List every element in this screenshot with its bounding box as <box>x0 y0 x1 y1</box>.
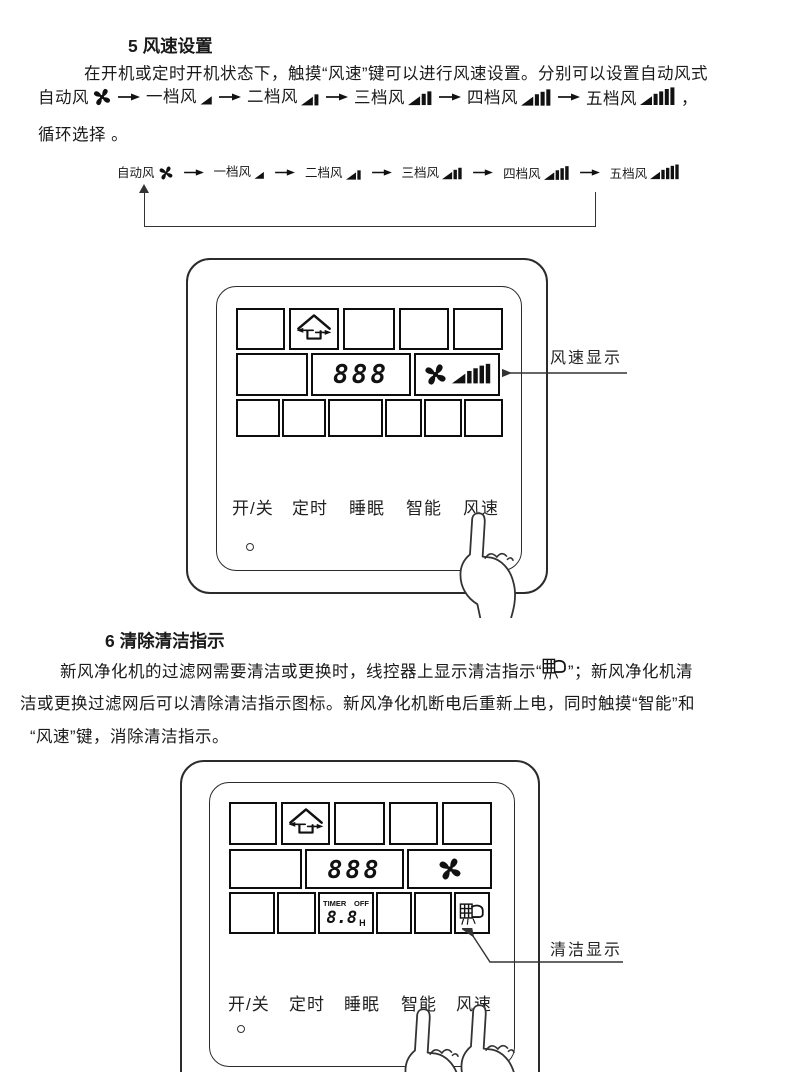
flow-item-auto: 自动风 <box>117 165 174 181</box>
home-ventilation-cell <box>281 802 330 845</box>
digits-cell: 888 <box>305 849 404 889</box>
lcd-cell <box>282 399 326 437</box>
speed-ramp-1-icon <box>254 165 265 180</box>
cycle-loop-connector <box>144 192 596 227</box>
lcd-cell <box>343 308 395 350</box>
arrow-right-icon <box>368 168 396 177</box>
section6-paragraph-line1: 新风净化机的过滤网需要清洁或更换时，线控器上显示清洁指示“”；新风净化机清 <box>60 656 693 682</box>
speed-ramp-4-icon <box>544 164 570 182</box>
section5-title: 5 风速设置 <box>128 33 213 58</box>
clean-filter-icon <box>542 656 568 681</box>
lcd-cell <box>229 849 302 889</box>
flow-item-speed5: 五档风 <box>610 163 681 182</box>
fan-cell <box>407 849 492 889</box>
lcd-cell <box>334 802 385 845</box>
lcd-cell <box>236 399 280 437</box>
lcd-cell <box>236 308 285 350</box>
lcd-display-grid: 888 <box>236 308 503 437</box>
arrow-right-icon <box>180 168 208 177</box>
segment-display: 888 <box>327 855 381 884</box>
lcd-cell <box>236 353 308 396</box>
lcd-display-grid: 888 TIMER OFF 8.8 H <box>229 802 492 934</box>
home-ventilation-cell <box>289 308 339 350</box>
flow-item-speed5: 五档风 <box>586 86 676 108</box>
lcd-cell <box>424 399 462 437</box>
lcd-cell <box>464 399 503 437</box>
flow-label: 自动风 <box>117 167 155 181</box>
fan-icon <box>437 856 463 882</box>
flow-item-auto: 自动风 <box>38 87 112 107</box>
flow-label: 二档风 <box>305 167 343 181</box>
flow-item-speed1: 一档风 <box>214 165 266 180</box>
flow-comma: ， <box>681 85 698 109</box>
key-power: 开/关 <box>232 494 274 519</box>
arrow-right-icon <box>325 92 349 102</box>
speed-ramp-4-icon <box>521 87 552 108</box>
flow-label: 自动风 <box>38 89 89 107</box>
fan-icon <box>158 165 174 181</box>
lcd-cell <box>453 308 503 350</box>
fan-speed-cell <box>414 353 500 396</box>
clean-filter-icon <box>459 901 486 926</box>
lcd-cell <box>399 308 449 350</box>
flow-item-speed1: 一档风 <box>146 88 213 106</box>
lcd-cell <box>376 892 412 934</box>
indicator-led <box>246 543 254 551</box>
flow-item-speed2: 二档风 <box>305 165 362 181</box>
arrow-right-icon <box>218 92 242 102</box>
arrow-right-icon <box>117 92 141 102</box>
flow-label: 四档风 <box>467 89 518 107</box>
key-sleep: 睡眠 <box>349 494 385 519</box>
speed-ramp-2-icon <box>346 165 362 181</box>
flow-label: 四档风 <box>503 168 541 182</box>
manual-page: 5 风速设置 在开机或定时开机状态下，触摸“风速”键可以进行风速设置。分别可以设… <box>0 0 790 1072</box>
flow-label: 二档风 <box>247 88 298 106</box>
speed-ramp-3-icon <box>442 164 463 181</box>
lcd-cell <box>277 892 316 934</box>
section6-title: 6 清除清洁指示 <box>105 628 225 653</box>
arrow-right-icon <box>469 168 497 177</box>
lcd-cell <box>229 802 277 845</box>
section6-paragraph-line2: 洁或更换过滤网后可以清除清洁指示图标。新风净化机断电后重新上电，同时触摸“智能”… <box>20 690 695 714</box>
timer-off-label: OFF <box>354 899 369 908</box>
flow-item-speed3: 三档风 <box>402 164 464 181</box>
key-timer: 定时 <box>292 494 328 519</box>
flow-label: 三档风 <box>402 167 440 181</box>
section5-paragraph-line3: 循环选择 。 <box>38 121 128 145</box>
flow-label: 五档风 <box>586 90 637 108</box>
flow-item-speed3: 三档风 <box>354 87 433 107</box>
flow-label: 三档风 <box>354 89 405 107</box>
fan-speed-flow-inline: 自动风 一档风 二档风 三档风 四档风 五档风 ， <box>38 85 698 109</box>
lcd-cell <box>229 892 275 934</box>
arrow-right-icon <box>271 168 299 177</box>
fan-speed-cycle-diagram: 自动风 一档风 二档风 三档风 四档风 五档风 <box>117 163 680 182</box>
speed-ramp-5-icon <box>640 86 676 108</box>
fan-icon <box>92 87 112 107</box>
speed-ramp-1-icon <box>200 88 213 106</box>
section5-paragraph-line1: 在开机或定时开机状态下，触摸“风速”键可以进行风速设置。分别可以设置自动风式 <box>84 60 708 84</box>
timer-label: TIMER <box>323 899 346 908</box>
lcd-cell <box>414 892 452 934</box>
lcd-cell <box>328 399 383 437</box>
arrow-right-icon <box>557 92 581 102</box>
key-sleep: 睡眠 <box>344 990 380 1015</box>
flow-label: 五档风 <box>610 168 648 182</box>
lcd-cell <box>385 399 422 437</box>
indicator-led <box>237 1025 245 1033</box>
section6-line1-post: ”；新风净化机清 <box>568 663 693 681</box>
pointing-hand-illustration <box>453 1002 527 1072</box>
lcd-cell <box>442 802 492 845</box>
key-power: 开/关 <box>228 990 270 1015</box>
timer-cell: TIMER OFF 8.8 H <box>318 892 374 934</box>
key-smart: 智能 <box>406 494 442 519</box>
speed-ramp-2-icon <box>301 88 320 107</box>
flow-label: 一档风 <box>214 166 252 180</box>
speed-ramp-5-icon <box>452 363 492 386</box>
arrow-right-icon <box>576 168 604 177</box>
callout-arrow-left-icon <box>502 366 628 379</box>
home-ventilation-icon <box>287 807 325 840</box>
pointing-hand-illustration <box>452 510 526 618</box>
flow-item-speed4: 四档风 <box>467 87 552 108</box>
key-timer: 定时 <box>289 990 325 1015</box>
flow-item-speed4: 四档风 <box>503 164 570 182</box>
home-ventilation-icon <box>295 313 333 346</box>
section6-line1-pre: 新风净化机的过滤网需要清洁或更换时，线控器上显示清洁指示“ <box>60 663 542 681</box>
timer-unit: H <box>359 918 366 928</box>
speed-ramp-5-icon <box>650 163 680 182</box>
fan-speed-callout-label: 风速显示 <box>550 344 622 368</box>
fan-icon <box>423 362 448 387</box>
arrow-right-icon <box>438 92 462 102</box>
callout-arrow-diagonal-icon <box>462 928 630 968</box>
lcd-cell <box>389 802 438 845</box>
timer-segment-display: 8.8 <box>326 908 357 928</box>
flow-label: 一档风 <box>146 88 197 106</box>
section6-paragraph-line3: “风速”键，消除清洁指示。 <box>30 723 229 747</box>
digits-cell: 888 <box>311 353 411 396</box>
flow-item-speed2: 二档风 <box>247 88 320 107</box>
speed-ramp-3-icon <box>408 87 433 107</box>
segment-display: 888 <box>333 360 389 390</box>
